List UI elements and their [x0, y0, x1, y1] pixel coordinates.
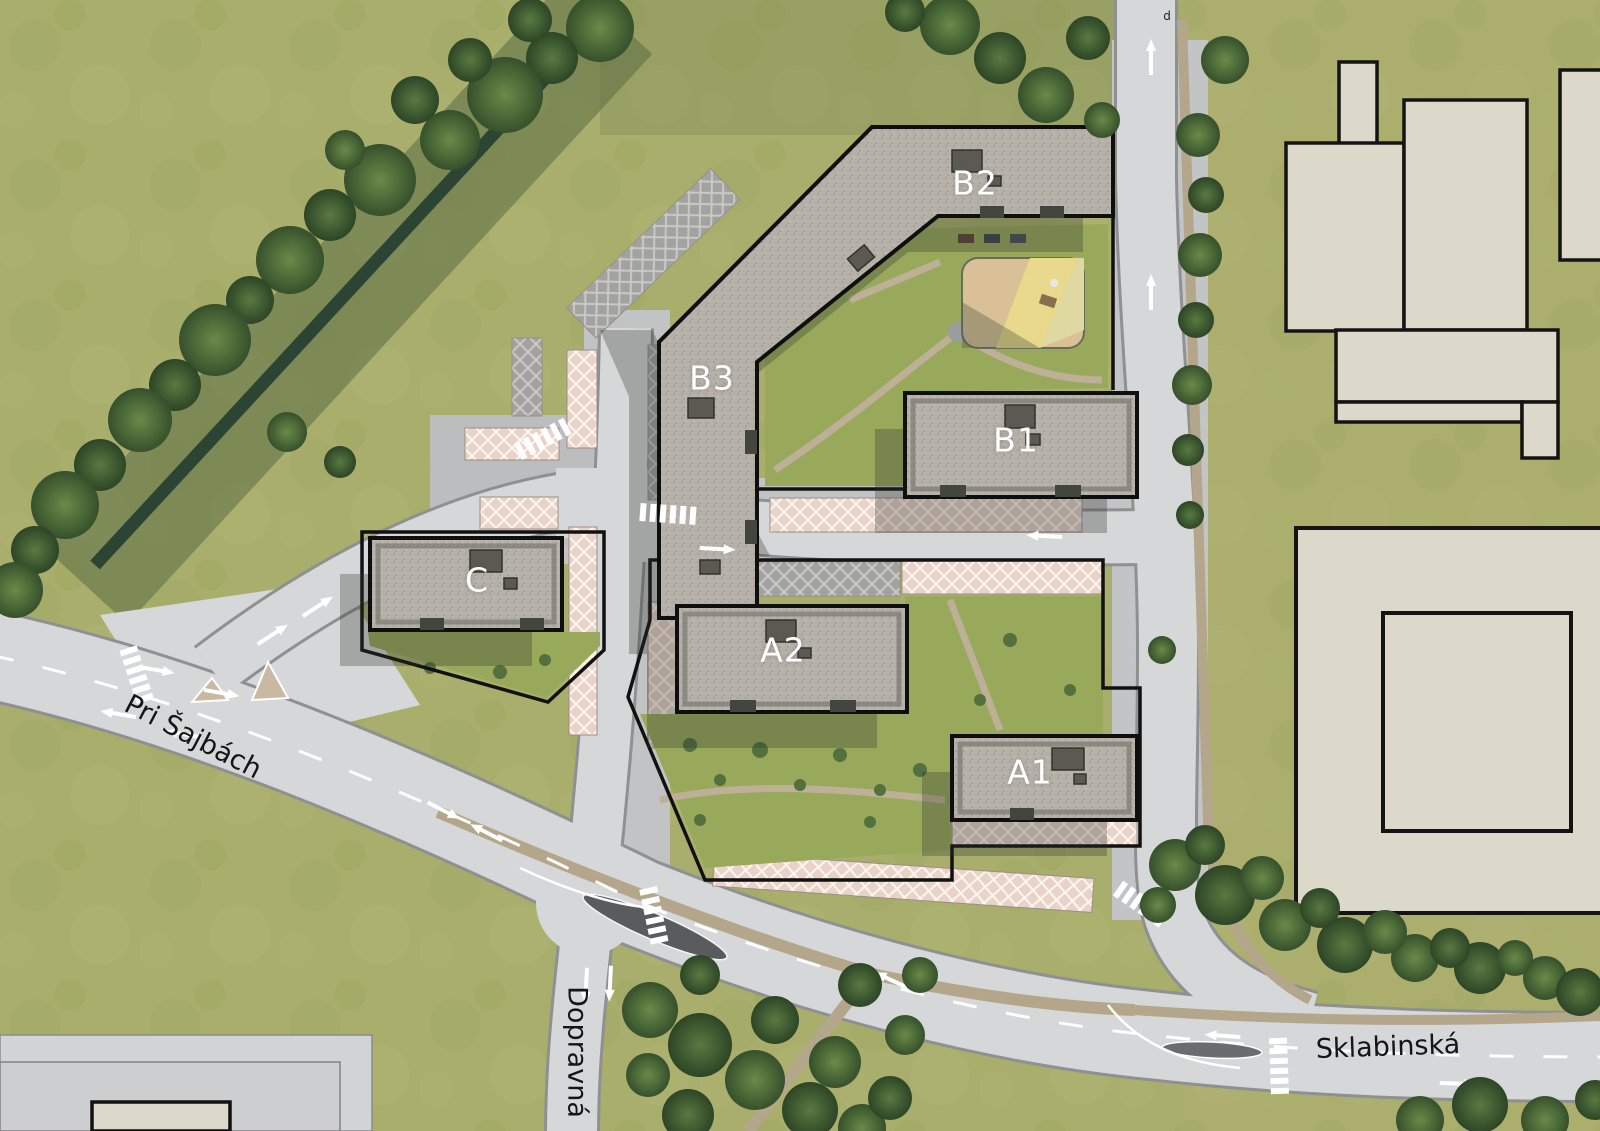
building-c [370, 538, 562, 630]
building-a1 [952, 736, 1137, 820]
site-plan-canvas [0, 0, 1600, 1131]
playground [962, 258, 1084, 348]
site-plan: B2 B3 B1 C A2 A1 Pri Šajbách Dopravná Sk… [0, 0, 1600, 1131]
